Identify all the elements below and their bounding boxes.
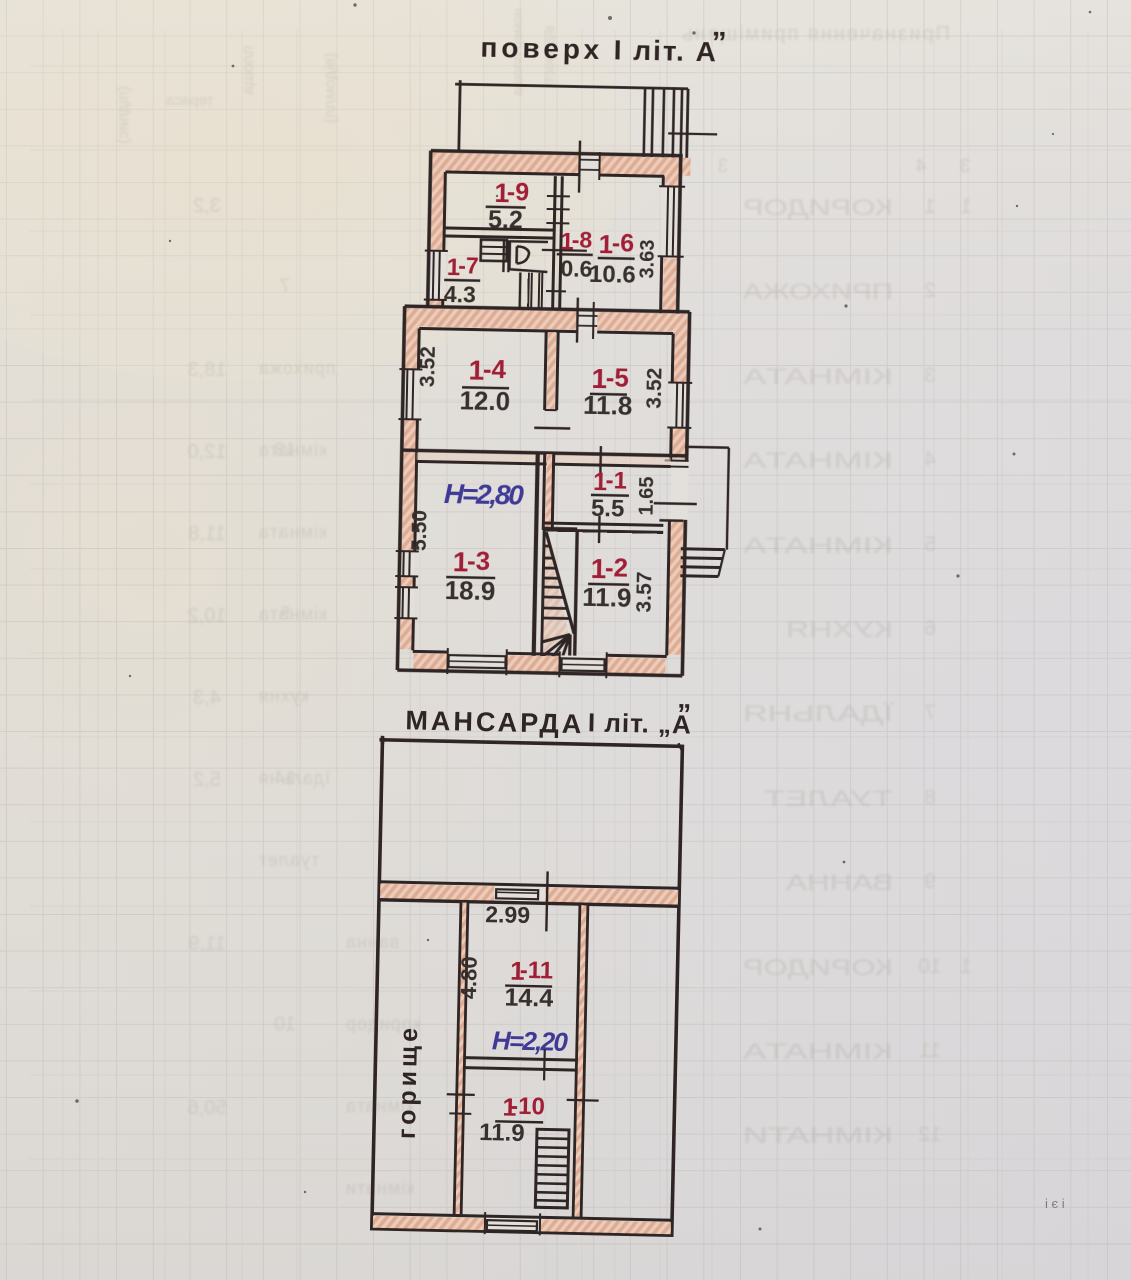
svg-text:11.8: 11.8: [583, 390, 633, 421]
svg-text:КОРИДОР: КОРИДОР: [743, 195, 893, 220]
svg-text:кімната: кімната: [258, 522, 327, 542]
svg-text:КІМНАТА: КІМНАТА: [742, 448, 893, 473]
svg-text:18,3: 18,3: [188, 359, 227, 381]
svg-text:4.80: 4.80: [456, 956, 482, 999]
svg-text:10,2: 10,2: [188, 605, 227, 627]
svg-text:(підпис): (підпис): [115, 86, 132, 144]
svg-text:11,8: 11,8: [188, 523, 225, 545]
svg-text:поверх: поверх: [480, 32, 603, 65]
svg-text:10.6: 10.6: [589, 261, 636, 289]
svg-text:12: 12: [918, 1123, 941, 1146]
svg-text:H=2,20: H=2,20: [492, 1025, 569, 1057]
svg-text:5: 5: [924, 533, 936, 556]
svg-text:3.52: 3.52: [416, 346, 440, 387]
svg-text:-1: -1: [605, 467, 627, 494]
svg-text:9: 9: [924, 870, 936, 893]
svg-text:-6: -6: [612, 229, 635, 257]
svg-text:3: 3: [718, 156, 729, 177]
svg-text:КІМНАТИ: КІМНАТИ: [743, 1123, 893, 1148]
svg-text:12.0: 12.0: [459, 385, 510, 416]
svg-text:14.4: 14.4: [504, 984, 553, 1013]
svg-text:тераса: тераса: [166, 92, 214, 109]
svg-text:кухня: кухня: [258, 686, 309, 706]
svg-text:-4: -4: [483, 354, 507, 384]
svg-text:11.9: 11.9: [582, 582, 632, 613]
svg-text:10: 10: [918, 955, 941, 978]
svg-text:-8: -8: [572, 226, 593, 252]
svg-text:11.9: 11.9: [479, 1119, 525, 1147]
svg-text:КІМНАТА: КІМНАТА: [742, 1039, 893, 1064]
svg-text:КОРИДОР: КОРИДОР: [743, 955, 893, 980]
svg-text:КІМНАТА: КІМНАТА: [742, 533, 893, 558]
svg-text:туалет: туалет: [258, 850, 319, 870]
svg-text:H=2,80: H=2,80: [444, 478, 525, 511]
svg-text:-7: -7: [458, 252, 479, 278]
svg-text:3.63: 3.63: [636, 239, 659, 278]
svg-text:1.65: 1.65: [636, 476, 659, 515]
svg-text:І літ. А: І літ. А: [613, 34, 718, 67]
svg-text:3: 3: [960, 156, 971, 177]
svg-text:МАНСАРДА: МАНСАРДА: [405, 705, 584, 739]
svg-text:ванна: ванна: [345, 932, 399, 952]
svg-text:5.50: 5.50: [408, 510, 432, 551]
svg-text:4,3: 4,3: [193, 687, 221, 709]
svg-text:7: 7: [280, 276, 291, 297]
svg-text:3.52: 3.52: [643, 368, 667, 409]
svg-text:12,0: 12,0: [188, 441, 227, 463]
svg-text:4: 4: [924, 448, 936, 471]
svg-text:11: 11: [919, 1039, 941, 1062]
svg-text:1: 1: [924, 195, 936, 218]
svg-text:11,9: 11,9: [188, 933, 225, 955]
svg-text:6: 6: [924, 617, 936, 640]
svg-text:кімната: кімната: [258, 604, 327, 624]
svg-text:7: 7: [924, 701, 936, 724]
svg-text:площа: площа: [240, 45, 257, 94]
svg-text:5,2: 5,2: [193, 769, 221, 791]
svg-text:-10: -10: [510, 1093, 545, 1121]
svg-text:горище: горище: [393, 1024, 424, 1140]
svg-text:18.9: 18.9: [444, 575, 495, 606]
svg-text:14: 14: [274, 768, 296, 789]
svg-text:3: 3: [924, 364, 936, 387]
svg-text:13: 13: [274, 440, 295, 461]
svg-text:0.6: 0.6: [560, 255, 592, 282]
svg-text:”: ”: [711, 26, 727, 59]
svg-text:-5: -5: [605, 362, 629, 392]
svg-text:50,6: 50,6: [188, 1097, 227, 1119]
svg-text:ЇДАЛЬНЯ: ЇДАЛЬНЯ: [743, 701, 893, 726]
svg-text:КІМНАТА: КІМНАТА: [742, 364, 893, 389]
svg-text:ВАННА: ВАННА: [786, 870, 893, 895]
svg-text:”: ”: [677, 698, 692, 729]
svg-text:-9: -9: [507, 178, 530, 206]
svg-text:1: 1: [960, 955, 972, 978]
svg-text:5: 5: [280, 604, 291, 625]
svg-text:5.2: 5.2: [488, 206, 523, 235]
svg-text:2.99: 2.99: [485, 901, 530, 928]
svg-text:ПРИХОЖА: ПРИХОЖА: [743, 279, 893, 304]
svg-text:10: 10: [274, 1014, 295, 1035]
svg-text:4.3: 4.3: [444, 281, 476, 308]
svg-text:і є і: і є і: [1045, 1196, 1065, 1211]
svg-text:1: 1: [960, 195, 972, 218]
svg-text:3.57: 3.57: [633, 571, 657, 612]
svg-text:ТУАЛЕТ: ТУАЛЕТ: [764, 786, 893, 811]
svg-text:4: 4: [915, 156, 926, 177]
svg-text:прихожа: прихожа: [258, 358, 335, 378]
svg-text:8: 8: [924, 786, 936, 809]
svg-text:5.5: 5.5: [591, 495, 625, 523]
svg-text:(відомлл): (відомлл): [322, 53, 339, 124]
svg-text:2: 2: [924, 279, 936, 302]
svg-text:-11: -11: [519, 957, 553, 985]
svg-text:КУХНЯ: КУХНЯ: [786, 617, 893, 642]
svg-text:-2: -2: [605, 552, 629, 582]
svg-text:кімнати: кімнати: [345, 1178, 414, 1198]
svg-text:3,2: 3,2: [193, 195, 221, 217]
svg-text:-3: -3: [467, 545, 491, 575]
